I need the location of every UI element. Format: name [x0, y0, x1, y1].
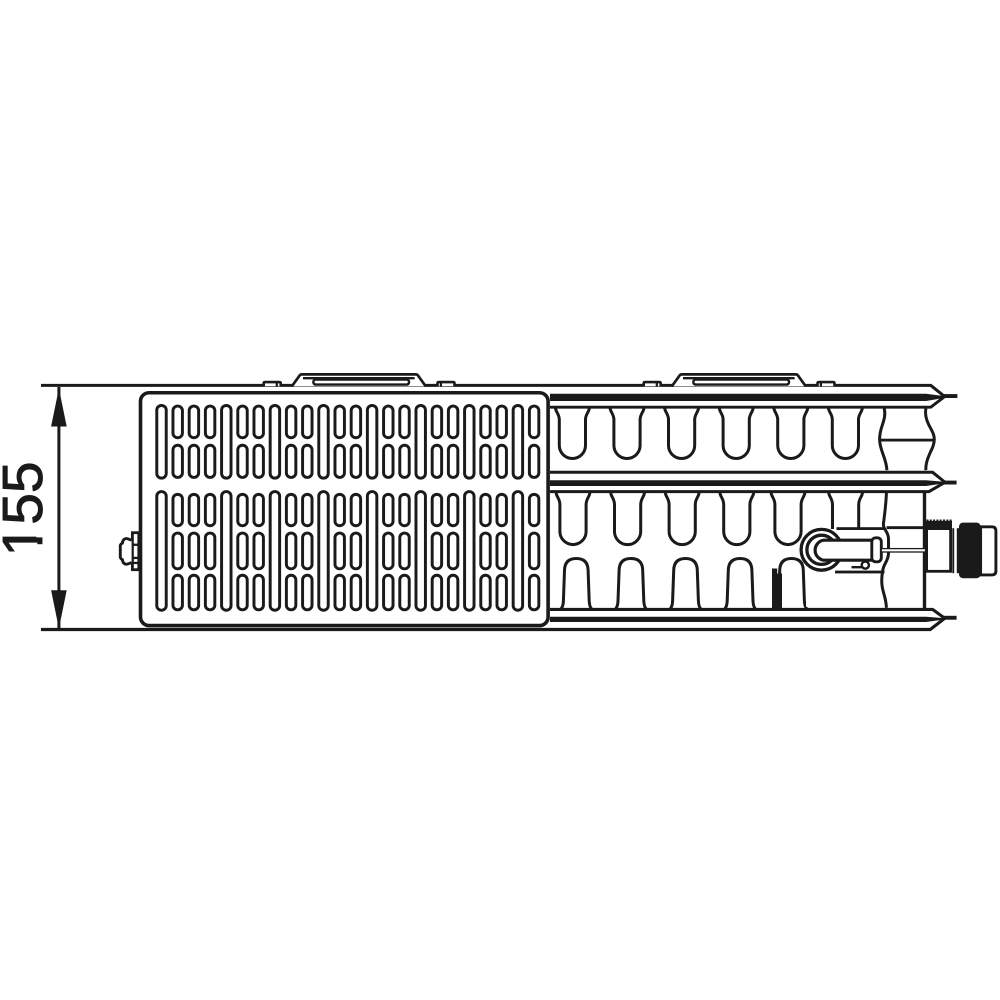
svg-text:155: 155 [0, 461, 55, 556]
